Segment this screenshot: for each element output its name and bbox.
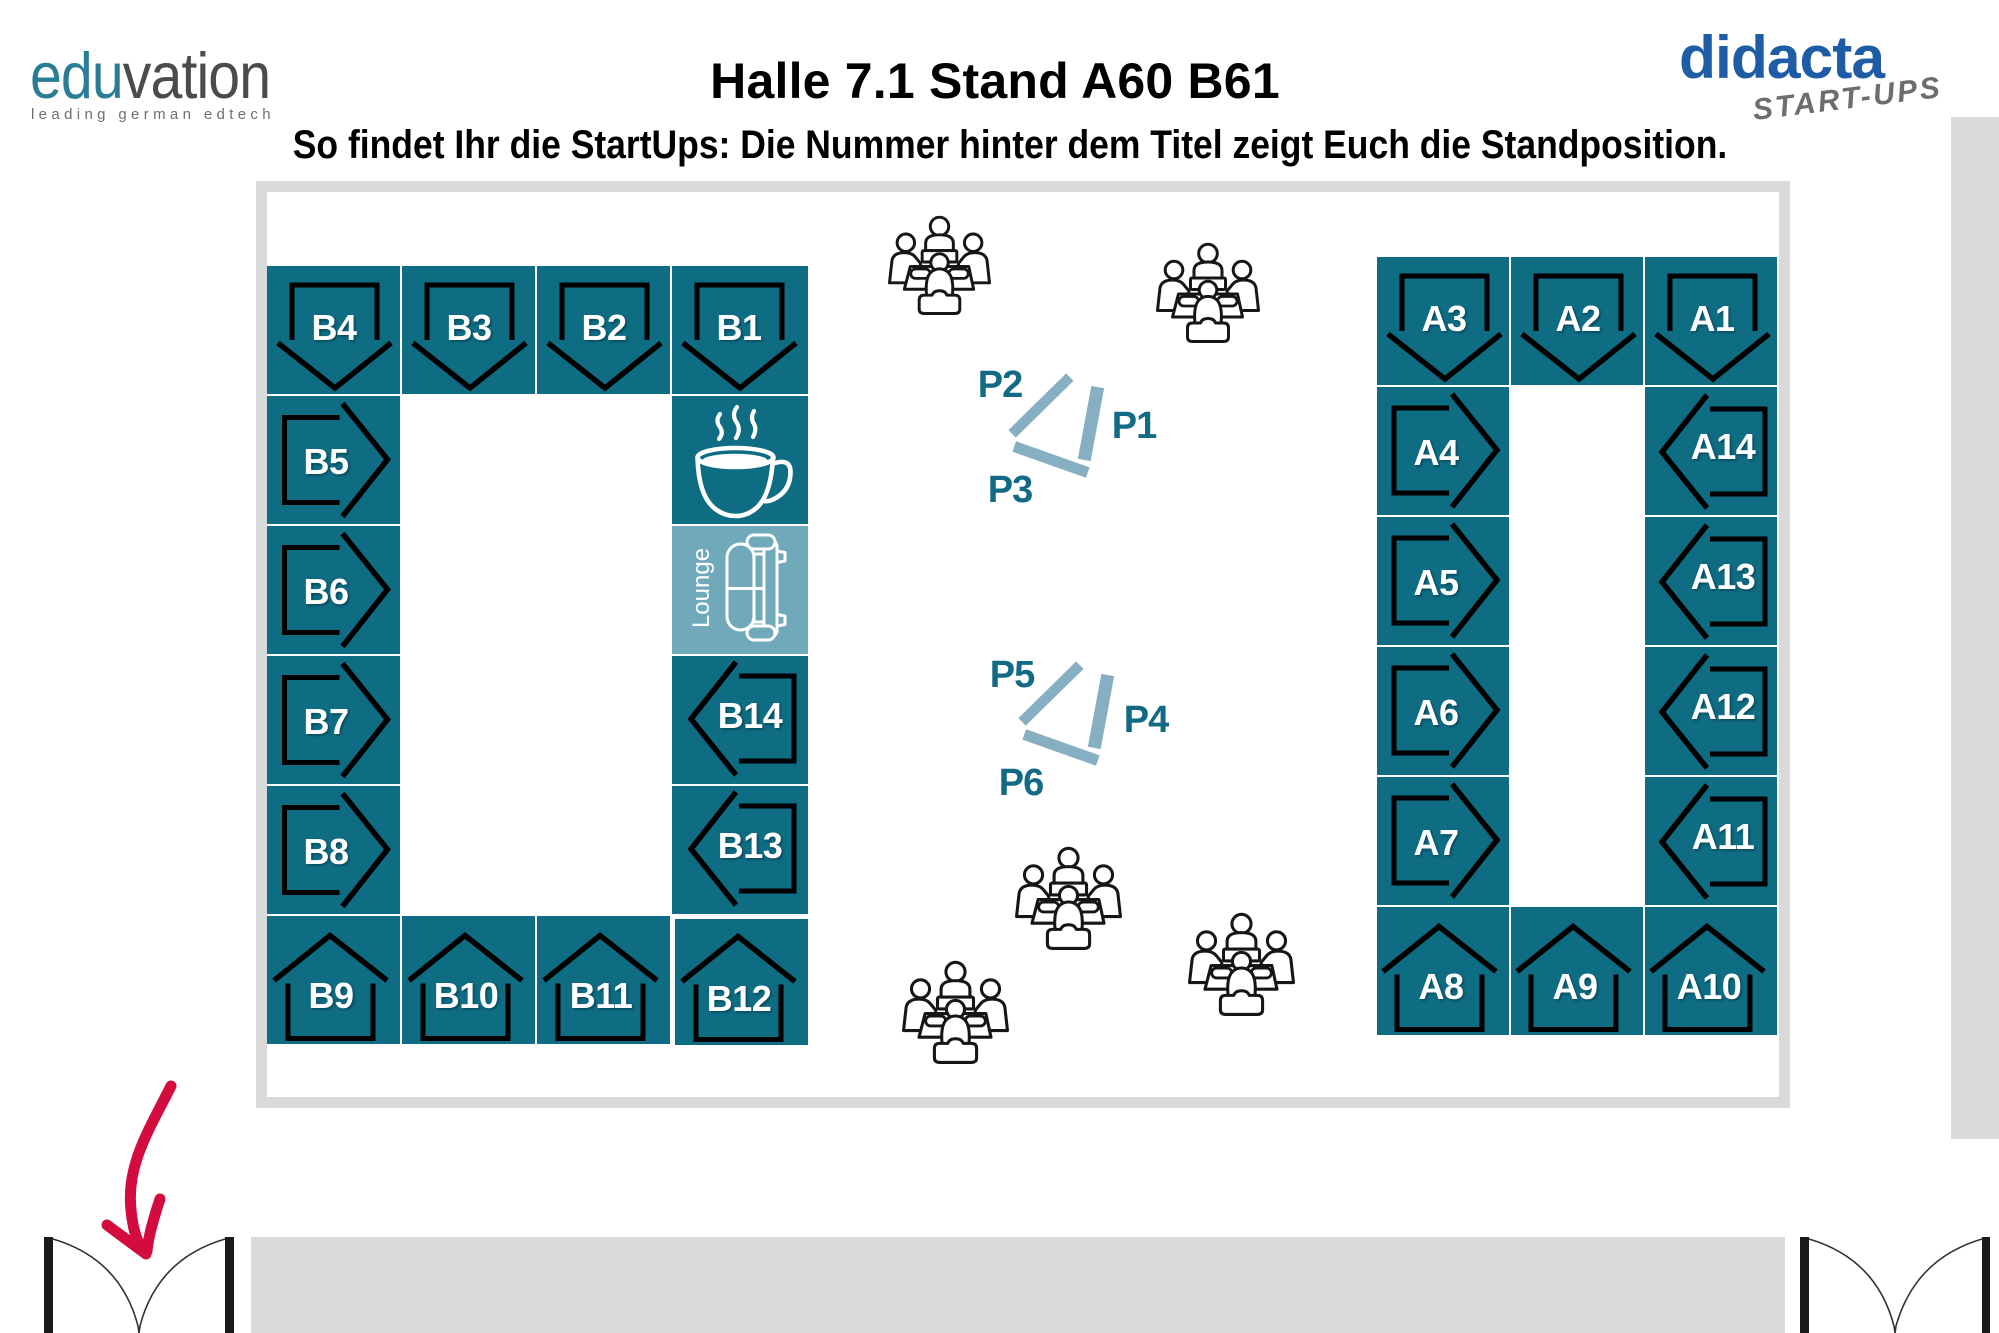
svg-text:eduvation: eduvation bbox=[30, 40, 270, 112]
svg-text:leading german edtech: leading german edtech bbox=[31, 106, 275, 123]
